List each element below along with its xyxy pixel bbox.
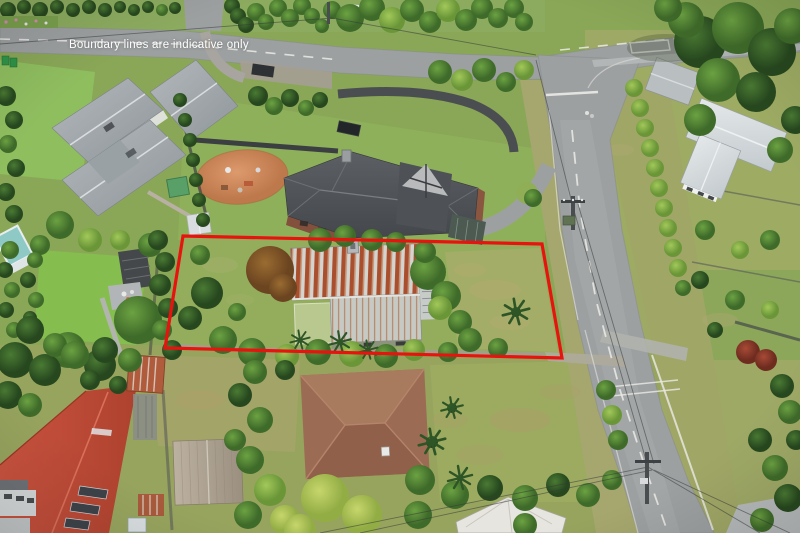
power-pole — [327, 2, 330, 24]
aerial-photo: Boundary lines are indicative only — [0, 0, 800, 533]
wheelie-bin — [2, 56, 9, 65]
driveway-island-tree — [524, 189, 542, 207]
subject-house — [290, 237, 436, 350]
boundary-disclaimer: Boundary lines are indicative only — [69, 39, 249, 51]
scene-svg — [0, 0, 800, 533]
utility-cabinet — [563, 216, 575, 225]
play-equipment — [225, 167, 231, 173]
neighbour-house-brown — [300, 369, 429, 479]
trampoline — [167, 176, 190, 197]
wheelie-bin — [10, 58, 17, 67]
